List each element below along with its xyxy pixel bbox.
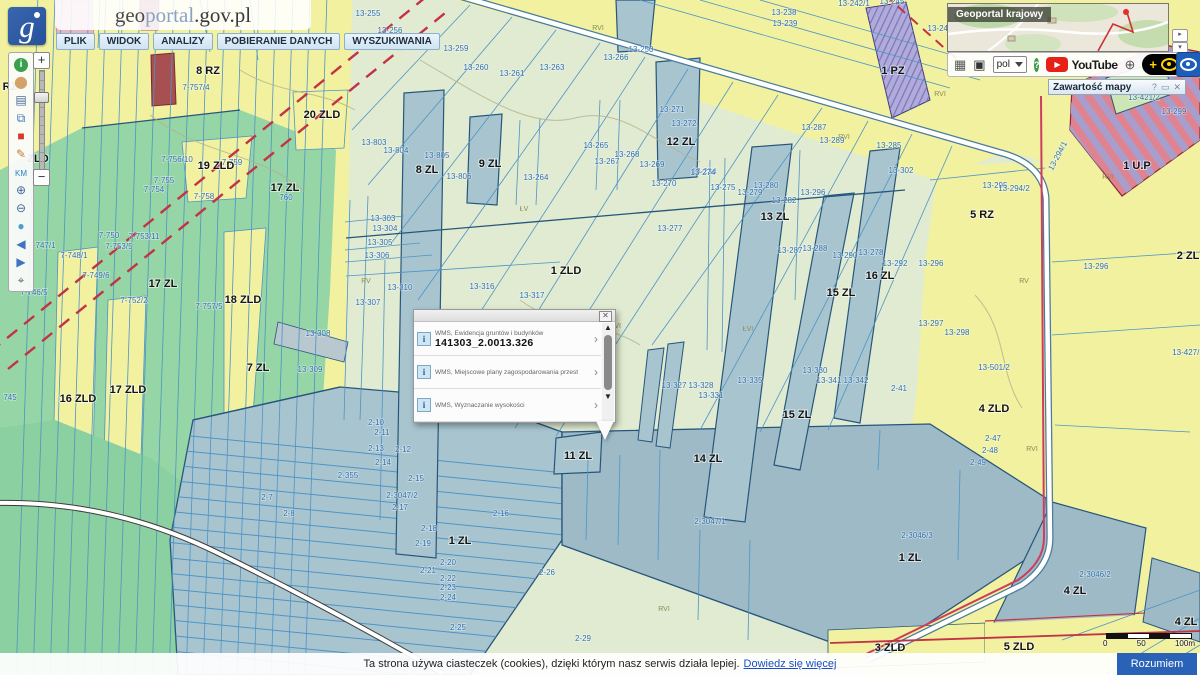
previous-view-tool[interactable]: ◀ bbox=[9, 235, 33, 253]
title-portal: portal bbox=[145, 3, 194, 27]
popup-callout-tail bbox=[596, 421, 614, 440]
title-geo: geo bbox=[115, 3, 145, 27]
svg-text:13-270: 13-270 bbox=[652, 179, 677, 188]
next-view-tool-icon: ▶ bbox=[16, 253, 25, 271]
svg-text:2-20: 2-20 bbox=[440, 558, 457, 567]
accessibility-globe-icon[interactable]: ⊕ bbox=[1125, 58, 1136, 71]
svg-text:12 ZL: 12 ZL bbox=[667, 136, 696, 148]
svg-text:5 ZLD: 5 ZLD bbox=[1004, 641, 1035, 653]
svg-text:13-316: 13-316 bbox=[470, 282, 495, 291]
svg-text:13-309: 13-309 bbox=[298, 365, 323, 374]
panel-close-icon[interactable]: ✕ bbox=[1173, 83, 1181, 92]
measure-tool[interactable]: ✎ bbox=[9, 145, 33, 163]
svg-text:13-308: 13-308 bbox=[306, 329, 331, 338]
popup-row-id: 141303_2.0013.326 bbox=[435, 337, 590, 349]
svg-text:2-3046/2: 2-3046/2 bbox=[1079, 570, 1111, 579]
svg-text:2-48: 2-48 bbox=[982, 446, 999, 455]
svg-text:2-355: 2-355 bbox=[338, 471, 359, 480]
svg-text:13-296: 13-296 bbox=[801, 188, 826, 197]
svg-text:1 U.P: 1 U.P bbox=[1123, 160, 1151, 172]
svg-text:13-331: 13-331 bbox=[699, 391, 724, 400]
scale-label-50: 50 bbox=[1137, 639, 1146, 648]
svg-text:13-342: 13-342 bbox=[844, 376, 869, 385]
svg-text:13-304: 13-304 bbox=[373, 224, 398, 233]
svg-text:7-752/2: 7-752/2 bbox=[120, 296, 148, 305]
svg-text:13-306: 13-306 bbox=[365, 251, 390, 260]
cookie-bar: Ta strona używa ciasteczek (cookies), dz… bbox=[0, 653, 1200, 675]
svg-text:13-272: 13-272 bbox=[672, 119, 697, 128]
svg-text:13-263: 13-263 bbox=[540, 63, 565, 72]
popup-row-list: iWMS, Ewidencja gruntów i budynków141303… bbox=[414, 323, 601, 422]
svg-text:2-18: 2-18 bbox=[421, 524, 438, 533]
svg-text:13-269: 13-269 bbox=[640, 160, 665, 169]
logo-letter: g bbox=[19, 9, 35, 44]
svg-text:7-753/5: 7-753/5 bbox=[105, 242, 133, 251]
map-toolbar: i⬤▤⧉■✎KM⊕⊖●◀▶⌖ bbox=[8, 52, 34, 292]
print-icon[interactable]: ▣ bbox=[973, 58, 985, 71]
popup-close-button[interactable]: ✕ bbox=[599, 311, 612, 322]
svg-text:13-296: 13-296 bbox=[919, 259, 944, 268]
cookie-accept-button[interactable]: Rozumiem bbox=[1117, 653, 1197, 675]
popup-scrollbar[interactable]: ▲ ▼ bbox=[602, 323, 614, 421]
svg-text:20 ZLD: 20 ZLD bbox=[304, 109, 341, 121]
youtube-play-icon: ▶ bbox=[1046, 57, 1068, 72]
svg-text:2-41: 2-41 bbox=[891, 384, 908, 393]
svg-text:7-754: 7-754 bbox=[144, 185, 165, 194]
svg-text:1 ZLD: 1 ZLD bbox=[551, 265, 582, 277]
svg-text:2-25: 2-25 bbox=[450, 623, 467, 632]
svg-text:13-806: 13-806 bbox=[447, 172, 472, 181]
popup-row-1[interactable]: iWMS, Miejscowe plany zagospodarowania p… bbox=[414, 356, 601, 389]
svg-text:13-242/1: 13-242/1 bbox=[838, 0, 870, 8]
svg-text:13-307: 13-307 bbox=[356, 298, 381, 307]
svg-text:2-47: 2-47 bbox=[985, 434, 1002, 443]
scale-label-100m: 100m bbox=[1175, 639, 1195, 648]
svg-text:2-3046/3: 2-3046/3 bbox=[901, 531, 933, 540]
svg-text:13-296: 13-296 bbox=[1084, 262, 1109, 271]
svg-text:4 ZLD: 4 ZLD bbox=[979, 403, 1010, 415]
svg-text:1 PZ: 1 PZ bbox=[881, 65, 905, 77]
svg-text:13-287: 13-287 bbox=[802, 123, 827, 132]
svg-text:7-757/5: 7-757/5 bbox=[195, 302, 223, 311]
chevron-right-icon[interactable]: › bbox=[594, 332, 598, 346]
history-tool[interactable]: ⬤ bbox=[9, 73, 33, 91]
svg-text:13-294/2: 13-294/2 bbox=[998, 184, 1030, 193]
svg-text:2-3047/1: 2-3047/1 bbox=[694, 517, 726, 526]
svg-text:13 ZL: 13 ZL bbox=[761, 211, 790, 223]
map-contents-panel-header[interactable]: Zawartość mapy ? ▭ ✕ bbox=[1048, 79, 1186, 95]
svg-text:745: 745 bbox=[3, 393, 17, 402]
menu-item-pobieranie-danych[interactable]: POBIERANIE DANYCH bbox=[217, 33, 341, 50]
eye-icon bbox=[1180, 58, 1197, 71]
app-toolbar: ▦ ▣ pol ? ▶ YouTube ⊕ + bbox=[947, 52, 1184, 77]
svg-text:ŁVI: ŁVI bbox=[743, 326, 754, 333]
language-value: pol bbox=[997, 59, 1010, 70]
menu-item-analizy[interactable]: ANALIZY bbox=[153, 33, 212, 50]
svg-text:13-245: 13-245 bbox=[880, 0, 905, 6]
zoom-slider-handle[interactable] bbox=[34, 92, 49, 103]
svg-text:7-755: 7-755 bbox=[154, 176, 175, 185]
svg-text:7-757/4: 7-757/4 bbox=[182, 83, 210, 92]
svg-text:2-19: 2-19 bbox=[415, 539, 432, 548]
svg-text:13-804: 13-804 bbox=[384, 146, 409, 155]
svg-text:13-288: 13-288 bbox=[803, 244, 828, 253]
svg-text:13-271: 13-271 bbox=[660, 105, 685, 114]
svg-text:RVI: RVI bbox=[592, 25, 604, 32]
svg-text:13-328: 13-328 bbox=[689, 381, 714, 390]
svg-text:13-266: 13-266 bbox=[604, 53, 629, 62]
svg-text:14 ZL: 14 ZL bbox=[694, 453, 723, 465]
svg-text:17 ZLD: 17 ZLD bbox=[110, 384, 147, 396]
svg-text:2-21: 2-21 bbox=[420, 566, 437, 575]
svg-text:7-753/11: 7-753/11 bbox=[129, 232, 161, 241]
contrast-plus-icon: + bbox=[1149, 58, 1157, 71]
svg-text:13-501/2: 13-501/2 bbox=[978, 363, 1010, 372]
svg-text:18 ZLD: 18 ZLD bbox=[225, 294, 262, 306]
scale-tool[interactable]: KM bbox=[9, 163, 33, 181]
svg-text:19 ZLD: 19 ZLD bbox=[198, 160, 235, 172]
svg-text:13-298: 13-298 bbox=[945, 328, 970, 337]
svg-text:2-11: 2-11 bbox=[374, 428, 390, 437]
menu-item-widok[interactable]: WIDOK bbox=[99, 33, 149, 50]
popup-header[interactable]: ✕ bbox=[414, 310, 615, 322]
svg-text:13-303: 13-303 bbox=[371, 214, 396, 223]
svg-text:ŁV: ŁV bbox=[520, 206, 529, 213]
clear-selection-tool-icon: ■ bbox=[17, 127, 24, 145]
popup-row-2[interactable]: iWMS, Wyznaczanie wysokości› bbox=[414, 389, 601, 422]
svg-text:15 ZL: 15 ZL bbox=[783, 409, 812, 421]
svg-text:13-290: 13-290 bbox=[833, 251, 858, 260]
popup-row-0[interactable]: iWMS, Ewidencja gruntów i budynków141303… bbox=[414, 323, 601, 356]
svg-text:2-13: 2-13 bbox=[368, 444, 385, 453]
svg-text:7-750: 7-750 bbox=[99, 231, 120, 240]
chevron-right-icon[interactable]: › bbox=[594, 398, 598, 412]
svg-text:13-297: 13-297 bbox=[919, 319, 944, 328]
svg-text:13-341: 13-341 bbox=[817, 376, 842, 385]
svg-text:13-327: 13-327 bbox=[662, 381, 687, 390]
svg-text:13-277: 13-277 bbox=[658, 224, 683, 233]
next-view-tool[interactable]: ▶ bbox=[9, 253, 33, 271]
scrollbar-thumb[interactable] bbox=[604, 335, 612, 390]
svg-text:2-23: 2-23 bbox=[440, 583, 457, 592]
svg-text:2-29: 2-29 bbox=[575, 634, 592, 643]
svg-text:13-255: 13-255 bbox=[356, 9, 381, 18]
visibility-button[interactable] bbox=[1176, 52, 1200, 77]
svg-text:7-748/1: 7-748/1 bbox=[60, 251, 88, 260]
help-button[interactable]: ? bbox=[1034, 58, 1040, 72]
overview-minimap[interactable]: Geoportal krajowy bbox=[947, 3, 1169, 52]
popup-row-source: WMS, Miejscowe plany zagospodarowania pr… bbox=[435, 369, 590, 376]
svg-text:2-15: 2-15 bbox=[408, 474, 425, 483]
svg-text:8 RZ: 8 RZ bbox=[196, 65, 220, 77]
minimap-title: Geoportal krajowy bbox=[948, 7, 1051, 22]
clear-selection-tool[interactable]: ■ bbox=[9, 127, 33, 145]
svg-text:16 ZL: 16 ZL bbox=[866, 270, 895, 282]
svg-text:16 ZLD: 16 ZLD bbox=[60, 393, 97, 405]
scroll-down-icon[interactable]: ▼ bbox=[602, 392, 614, 402]
globe-tool-icon: ● bbox=[17, 217, 24, 235]
svg-text:13-268: 13-268 bbox=[615, 150, 640, 159]
svg-text:13-275: 13-275 bbox=[711, 183, 736, 192]
popup-row-source: WMS, Wyznaczanie wysokości bbox=[435, 402, 590, 409]
minimap-expand-button[interactable]: ▸ bbox=[1172, 29, 1188, 42]
svg-text:8 ZL: 8 ZL bbox=[416, 164, 439, 176]
svg-text:13-287: 13-287 bbox=[778, 246, 803, 255]
svg-text:RV: RV bbox=[1019, 278, 1029, 285]
scroll-up-icon[interactable]: ▲ bbox=[602, 323, 614, 333]
zoom-in-tool-icon: ⊕ bbox=[16, 181, 26, 199]
svg-text:13-427/2: 13-427/2 bbox=[1172, 348, 1200, 357]
history-tool-icon: ⬤ bbox=[14, 73, 27, 91]
svg-text:13-330: 13-330 bbox=[803, 366, 828, 375]
svg-text:2-49: 2-49 bbox=[970, 458, 987, 467]
main-menu: PLIKWIDOKANALIZYPOBIERANIE DANYCHWYSZUKI… bbox=[56, 33, 440, 50]
attribute-table-tool[interactable]: ▤ bbox=[9, 91, 33, 109]
svg-text:13-260: 13-260 bbox=[464, 63, 489, 72]
svg-text:13-289: 13-289 bbox=[820, 136, 845, 145]
svg-text:15 ZL: 15 ZL bbox=[827, 287, 856, 299]
zoom-slider-track[interactable] bbox=[39, 70, 45, 170]
svg-text:5 RZ: 5 RZ bbox=[970, 209, 994, 221]
svg-text:2-3047/2: 2-3047/2 bbox=[386, 491, 418, 500]
svg-text:1 ZL: 1 ZL bbox=[899, 552, 922, 564]
svg-text:13-239: 13-239 bbox=[773, 19, 798, 28]
title-suffix: .gov.pl bbox=[194, 3, 251, 27]
panel-help-icon[interactable]: ? bbox=[1152, 83, 1157, 92]
svg-text:1 ZL: 1 ZL bbox=[449, 535, 472, 547]
svg-text:4 ZL: 4 ZL bbox=[1175, 616, 1198, 628]
svg-text:13-805: 13-805 bbox=[425, 151, 450, 160]
svg-text:2-26: 2-26 bbox=[539, 568, 556, 577]
panel-maximize-icon[interactable]: ▭ bbox=[1161, 83, 1170, 92]
zoom-in-button[interactable]: + bbox=[33, 52, 50, 69]
svg-text:RV: RV bbox=[361, 278, 371, 285]
svg-text:2-24: 2-24 bbox=[440, 593, 457, 602]
svg-text:RVI: RVI bbox=[1026, 446, 1038, 453]
svg-text:13-280: 13-280 bbox=[754, 181, 779, 190]
identify-results-popup: ✕ iWMS, Ewidencja gruntów i budynków1413… bbox=[413, 309, 616, 423]
cookie-more-link[interactable]: Dowiedz się więcej bbox=[744, 658, 837, 670]
geoportal-logo[interactable]: g bbox=[8, 7, 46, 45]
globe-tool[interactable]: ● bbox=[9, 217, 33, 235]
svg-text:RVI: RVI bbox=[658, 606, 670, 613]
svg-text:13-278: 13-278 bbox=[859, 248, 884, 257]
svg-text:13-310: 13-310 bbox=[388, 283, 413, 292]
chevron-right-icon[interactable]: › bbox=[594, 365, 598, 379]
svg-text:13-264: 13-264 bbox=[524, 173, 549, 182]
svg-text:2-22: 2-22 bbox=[440, 574, 457, 583]
svg-text:760: 760 bbox=[279, 193, 293, 202]
select-area-tool[interactable]: ⧉ bbox=[9, 109, 33, 127]
info-icon: i bbox=[417, 332, 431, 346]
youtube-link[interactable]: ▶ YouTube bbox=[1046, 57, 1117, 72]
svg-text:13-250: 13-250 bbox=[629, 45, 654, 54]
attribute-table-tool-icon: ▤ bbox=[15, 91, 26, 109]
svg-text:13-292: 13-292 bbox=[883, 259, 908, 268]
identify-tool-icon: i bbox=[14, 58, 28, 72]
svg-text:13-305: 13-305 bbox=[368, 238, 393, 247]
zoom-out-button[interactable]: − bbox=[33, 169, 50, 186]
svg-text:13-299: 13-299 bbox=[1162, 107, 1187, 116]
chevron-down-icon bbox=[1015, 62, 1023, 67]
svg-text:2-12: 2-12 bbox=[395, 445, 412, 454]
svg-text:13-317: 13-317 bbox=[520, 291, 545, 300]
zoom-out-tool-icon: ⊖ bbox=[16, 199, 26, 217]
svg-text:13-282: 13-282 bbox=[772, 196, 797, 205]
compositions-icon[interactable]: ▦ bbox=[954, 58, 966, 71]
svg-text:RVI: RVI bbox=[934, 91, 946, 98]
svg-text:17 ZL: 17 ZL bbox=[149, 278, 178, 290]
svg-text:2-16: 2-16 bbox=[493, 509, 510, 518]
site-title: geoportal.gov.pl bbox=[55, 0, 311, 30]
svg-text:2-17: 2-17 bbox=[392, 503, 409, 512]
menu-item-wyszukiwania[interactable]: WYSZUKIWANIA bbox=[344, 33, 439, 50]
svg-text:2-7: 2-7 bbox=[261, 493, 273, 502]
svg-text:7-756/10: 7-756/10 bbox=[161, 155, 193, 164]
cookie-text: Ta strona używa ciasteczek (cookies), dz… bbox=[364, 658, 740, 670]
svg-text:7-758: 7-758 bbox=[194, 192, 215, 201]
svg-text:2-14: 2-14 bbox=[375, 458, 392, 467]
svg-text:2-10: 2-10 bbox=[368, 418, 385, 427]
svg-text:7 ZL: 7 ZL bbox=[247, 362, 270, 374]
svg-text:17 ZL: 17 ZL bbox=[271, 182, 300, 194]
scale-label-0: 0 bbox=[1103, 639, 1107, 648]
measure-tool-icon: ✎ bbox=[16, 145, 26, 163]
svg-text:13-335: 13-335 bbox=[738, 376, 763, 385]
info-icon: i bbox=[417, 365, 431, 379]
youtube-label: YouTube bbox=[1071, 58, 1117, 72]
zoom-out-tool[interactable]: ⊖ bbox=[9, 199, 33, 217]
svg-text:2-8: 2-8 bbox=[283, 509, 295, 518]
svg-text:13-302: 13-302 bbox=[889, 166, 914, 175]
previous-view-tool-icon: ◀ bbox=[16, 235, 25, 253]
svg-text:4 ZL: 4 ZL bbox=[1064, 585, 1087, 597]
svg-text:2 ZL: 2 ZL bbox=[1177, 250, 1200, 262]
center-view-tool-icon: ⌖ bbox=[18, 271, 25, 289]
popup-row-source: WMS, Ewidencja gruntów i budynków bbox=[435, 330, 590, 337]
center-view-tool[interactable]: ⌖ bbox=[9, 271, 33, 289]
select-area-tool-icon: ⧉ bbox=[17, 109, 26, 127]
logo-dot-icon bbox=[34, 12, 40, 18]
menu-item-plik[interactable]: PLIK bbox=[56, 33, 95, 50]
scale-bar: 0 50 100m bbox=[1103, 633, 1195, 648]
svg-text:13-259: 13-259 bbox=[444, 44, 469, 53]
language-select[interactable]: pol bbox=[993, 56, 1027, 73]
svg-text:7-749/6: 7-749/6 bbox=[82, 271, 110, 280]
svg-text:13-274: 13-274 bbox=[691, 168, 716, 177]
svg-text:13-265: 13-265 bbox=[584, 141, 609, 150]
info-icon: i bbox=[417, 398, 431, 412]
zoom-in-tool[interactable]: ⊕ bbox=[9, 181, 33, 199]
svg-text:13-238: 13-238 bbox=[772, 8, 797, 17]
svg-text:11 ZL: 11 ZL bbox=[564, 450, 592, 462]
svg-text:9 ZL: 9 ZL bbox=[479, 158, 502, 170]
identify-tool[interactable]: i bbox=[9, 55, 33, 73]
svg-text:13-285: 13-285 bbox=[877, 141, 902, 150]
svg-text:13-261: 13-261 bbox=[500, 69, 525, 78]
svg-text:RVI: RVI bbox=[1102, 174, 1114, 181]
panel-title: Zawartość mapy bbox=[1053, 82, 1148, 93]
